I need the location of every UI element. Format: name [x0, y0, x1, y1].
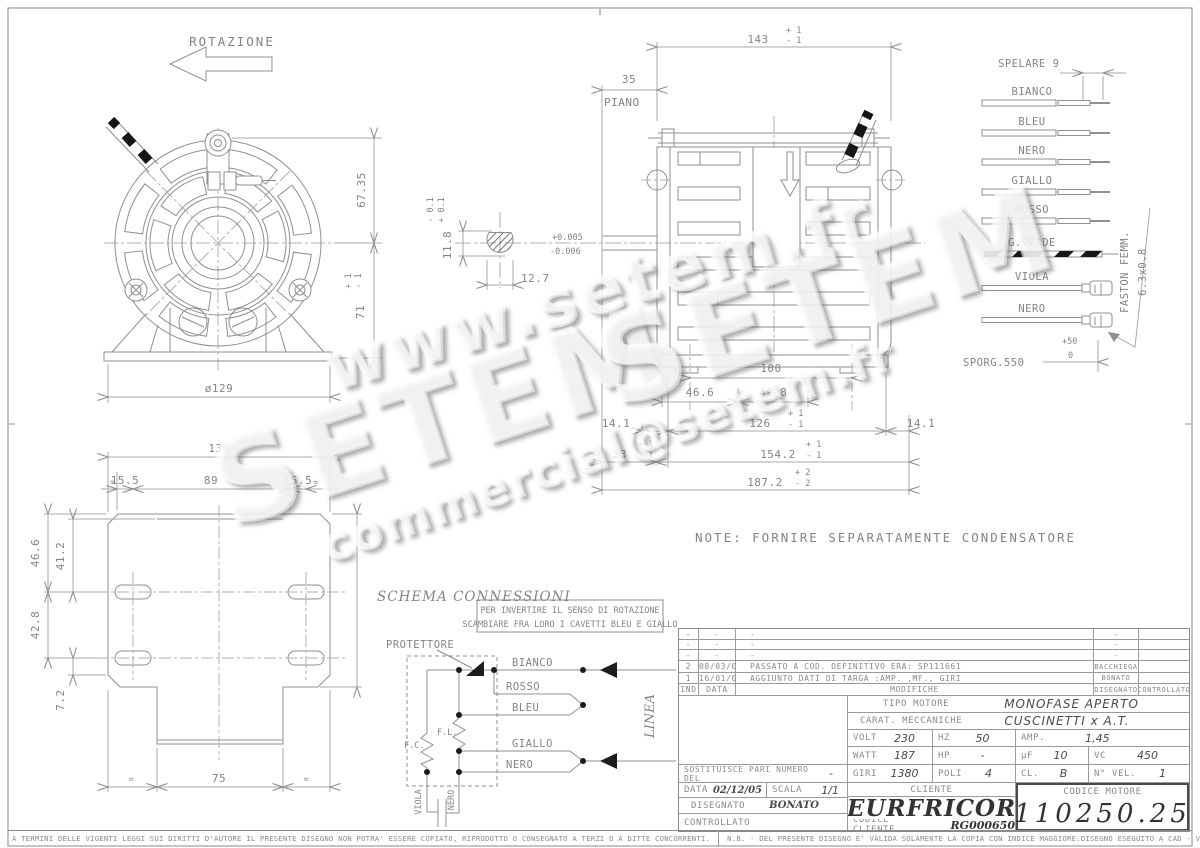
- vc-cell: VC450: [1089, 747, 1189, 765]
- eq-right: =: [313, 478, 318, 488]
- schema-note-2: SCAMBIARE FRA LORO I CAVETTI BLEU E GIAL…: [463, 620, 678, 630]
- title-block: - - - - - - - - - - - - 2 08/03/06 PASSA…: [678, 628, 1190, 832]
- tol-33-plus: + 1: [638, 440, 653, 450]
- dim-154-2: 154.2: [760, 448, 796, 461]
- data-cell: DATA02/12/05: [679, 783, 767, 798]
- controllato-row: CONTROLLATO: [679, 814, 848, 831]
- giri-cell: GIRI1380: [848, 765, 933, 783]
- linea-arrow2-icon: [600, 753, 617, 769]
- tol-143-plus: + 1: [786, 26, 801, 36]
- tol-187-plus: + 2: [795, 468, 810, 478]
- dim-14-1-right: 14.1: [907, 417, 936, 430]
- hp-cell: HP-: [933, 747, 1016, 765]
- poli-cell: POLI4: [933, 765, 1016, 783]
- rev-drawn-2: -: [1094, 650, 1139, 661]
- tol-71-plus: + 1: [344, 273, 354, 288]
- dim-42-8-plate: 42.8: [29, 611, 42, 640]
- codice-motore-box: CODICE MOTORE 110250.25: [1016, 783, 1189, 831]
- schema-labels: SCHEMA CONNESSIONI PER INVERTIRE IL SENS…: [377, 589, 677, 815]
- tol-187-minus: - 2: [795, 479, 810, 489]
- sporg-tol-plus: +50: [1062, 337, 1077, 347]
- plate-view: [44, 452, 362, 792]
- footer-strip: A TERMINI DELLE VIGENTI LEGGI SUI DIRITT…: [8, 830, 1192, 846]
- dim-41-2: 41.2: [54, 542, 67, 571]
- cl-cell: CL.B: [1016, 765, 1089, 783]
- cliente-header: CLIENTE: [848, 783, 1016, 797]
- rev-text-2: -: [736, 650, 1094, 661]
- rev-check-4: [1139, 673, 1189, 684]
- rev-drawn-3: BACCHIEGA: [1094, 661, 1139, 673]
- fc-label: F.C.: [404, 741, 424, 751]
- rev-check-2: [1139, 650, 1189, 661]
- plate-dims: [44, 452, 362, 792]
- rev-date-1: -: [699, 640, 736, 650]
- footer-nb: N.B. - DEL PRESENTE DISEGNO E' VALIDA SO…: [727, 834, 1081, 843]
- dim-35: 35: [622, 73, 636, 86]
- schema-giallo: GIALLO: [512, 738, 553, 750]
- linea-arrow-icon: [600, 662, 617, 678]
- nvel-cell: N° VEL.1: [1089, 765, 1189, 783]
- protettore-symbol: [466, 661, 484, 676]
- sostituisce-row: SOSTITUISCE PARI NUMERO DEL-: [679, 765, 848, 783]
- tol-126-plus: + 1: [788, 409, 803, 419]
- dim-42-8: 42.8: [759, 386, 788, 399]
- wire-list: [982, 73, 1150, 372]
- rev-text-4: AGGIUNTO DATI DI TARGA :AMP. ,MF., GIRI: [736, 673, 1094, 684]
- rev-date-2: -: [699, 650, 736, 661]
- tol-154-minus: - 1: [806, 451, 821, 461]
- sporg-label: SPORG.550: [963, 357, 1024, 369]
- tol-33-minus: - 1: [638, 451, 653, 461]
- cliente-name: EURFRICOR: [848, 797, 1016, 819]
- fit-plus: +0.005: [552, 233, 583, 243]
- viola-label: VIOLA: [414, 789, 424, 815]
- footer-divider: [718, 831, 719, 847]
- front-view-labels: ROTAZIONE 67.35 + 1 - 1 71 ø129: [189, 34, 368, 395]
- rev-ind-1: -: [679, 640, 699, 650]
- rev-ind-2: -: [679, 650, 699, 661]
- dim-136: 136: [208, 442, 229, 455]
- tol-minus-01: - 0.1: [426, 197, 436, 223]
- wire-viola-faston: [982, 281, 1112, 295]
- dim-14-1-left: 14.1: [602, 417, 631, 430]
- rev-header-controllato: CONTROLLATO: [1139, 684, 1189, 696]
- tipo-motore-row: TIPO MOTOREMONOFASE APERTO: [848, 696, 1189, 713]
- rev-check-1: [1139, 640, 1189, 650]
- rev-ind-3: 2: [679, 661, 699, 673]
- amp-cell: AMP.1,45: [1016, 730, 1189, 747]
- dim-100: 100: [760, 362, 781, 375]
- dim-187-2: 187.2: [747, 476, 783, 489]
- rev-drawn-1: -: [1094, 640, 1139, 650]
- rev-date-3: 08/03/06: [699, 661, 736, 673]
- rev-header-modifiche: MODIFICHE: [736, 684, 1094, 696]
- dim-89: 89: [204, 474, 218, 487]
- faston-size-label: 6.3x0.8: [1137, 248, 1149, 296]
- footer-copyright: A TERMINI DELLE VIGENTI LEGGI SUI DIRITT…: [8, 834, 710, 843]
- scala-cell: SCALA1/1: [767, 783, 848, 798]
- wire-label-bianco: BIANCO: [1012, 86, 1053, 98]
- dim-15-5-right: 15.5: [284, 474, 313, 487]
- piano-label: PIANO: [604, 96, 640, 109]
- carat-row: CARAT. MECCANICHECUSCINETTI x A.T.: [848, 713, 1189, 730]
- rev-date-4: 16/01/06: [699, 673, 736, 684]
- wire-nero-faston: [982, 313, 1112, 327]
- schema-title: SCHEMA CONNESSIONI: [377, 589, 571, 605]
- volt-cell: VOLT230: [848, 730, 933, 747]
- protettore-label: PROTETTORE: [386, 639, 454, 651]
- dim-126: 126: [749, 417, 770, 430]
- rev-header-data: DATA: [699, 684, 736, 696]
- note-text: NOTE: FORNIRE SEPARATAMENTE CONDENSATORE: [695, 530, 1076, 545]
- rev-check-0: [1139, 629, 1189, 640]
- wire-label-nero: NERO: [1018, 145, 1045, 157]
- faston-label: FASTON FEMM.: [1119, 231, 1131, 313]
- dim-7-2: 7.2: [54, 689, 67, 710]
- schema-nero: NERO: [506, 759, 533, 771]
- junction-dots: [424, 667, 586, 775]
- rev-header-disegnato: DISEGNATO: [1094, 684, 1139, 696]
- wire-label-gverde: G.VERDE: [1008, 237, 1056, 249]
- leader-arrow-icon: [1108, 332, 1120, 342]
- plate-labels: 136 = 15.5 89 15.5 = 46.6 41.2 42.8 7.2 …: [29, 442, 318, 785]
- schema-bleu: BLEU: [512, 702, 539, 714]
- dim-33: 33: [613, 448, 627, 461]
- rev-text-0: -: [736, 629, 1094, 640]
- tol-143-minus: - 1: [786, 36, 801, 46]
- uf-cell: µF10: [1016, 747, 1089, 765]
- rev-header-ind: IND: [679, 684, 699, 696]
- dim-15-5-left: 15.5: [111, 474, 140, 487]
- eq-bottom-right: =: [303, 775, 308, 785]
- nero-vert-label: NERO: [447, 790, 457, 810]
- rotation-arrow-icon: [170, 47, 272, 81]
- dim-143: 143: [747, 33, 768, 46]
- wire-gverde: [982, 251, 1118, 257]
- fit-minus: -0.006: [550, 247, 581, 257]
- rotazione-label: ROTAZIONE: [189, 34, 275, 49]
- footer-cad: DISEGNO ESEGUITO A CAD - VIETATA LA MODI…: [1081, 834, 1200, 843]
- eq-bottom-left: =: [128, 775, 133, 785]
- schema-note-1: PER INVERTIRE IL SENSO DI ROTAZIONE: [480, 606, 659, 616]
- tol-plus-01: + 0.1: [437, 197, 447, 223]
- drawing-sheet: ROTAZIONE 67.35 + 1 - 1 71 ø129 - 0.1 + …: [0, 0, 1200, 848]
- spelare-label: SPELARE 9: [998, 58, 1059, 70]
- cable-side: [835, 112, 876, 175]
- dim-67-35: 67.35: [355, 172, 368, 208]
- wire-label-viola: VIOLA: [1015, 271, 1049, 283]
- schema-bianco: BIANCO: [512, 657, 553, 669]
- rev-check-3: [1139, 661, 1189, 673]
- tol-71-minus: - 1: [354, 273, 364, 288]
- front-view: [104, 47, 382, 403]
- dim-71: 71: [354, 305, 367, 319]
- codice-motore-value: 110250.25: [1014, 799, 1191, 829]
- empty-box: [679, 696, 848, 765]
- wire-label-rosso: ROSSO: [1015, 204, 1049, 216]
- linea-label: LINEA: [643, 694, 658, 739]
- watt-cell: WATT187: [848, 747, 933, 765]
- rev-ind-0: -: [679, 629, 699, 640]
- fl-label: F.L.: [437, 728, 457, 738]
- rev-text-1: -: [736, 640, 1094, 650]
- rev-text-3: PASSATO A COD. DEFINITIVO ERA: SP111661: [736, 661, 1094, 673]
- schema-rosso: ROSSO: [506, 681, 540, 693]
- wire-label-bleu: BLEU: [1018, 116, 1045, 128]
- rev-drawn-0: -: [1094, 629, 1139, 640]
- cable-front: [106, 118, 158, 172]
- sporg-tol-zero: 0: [1068, 351, 1073, 361]
- rev-date-0: -: [699, 629, 736, 640]
- wire-label-giallo: GIALLO: [1012, 175, 1053, 187]
- dim-12-7: 12.7: [521, 272, 550, 285]
- dim-11-8: 11.8: [441, 231, 454, 260]
- tol-126-minus: - 1: [788, 420, 803, 430]
- dim-129: ø129: [205, 382, 234, 395]
- codice-motore-label: CODICE MOTORE: [1063, 787, 1141, 797]
- dim-46-6-plate: 46.6: [29, 539, 42, 568]
- tol-154-plus: + 1: [806, 440, 821, 450]
- dim-75: 75: [212, 772, 226, 785]
- rev-drawn-4: BONATO: [1094, 673, 1139, 684]
- rev-ind-4: 1: [679, 673, 699, 684]
- dim-46-6: 46.6: [686, 386, 715, 399]
- hz-cell: HZ50: [933, 730, 1016, 747]
- disegnato-row: DISEGNATOBONATO: [679, 798, 848, 814]
- wire-label-nero2: NERO: [1018, 303, 1045, 315]
